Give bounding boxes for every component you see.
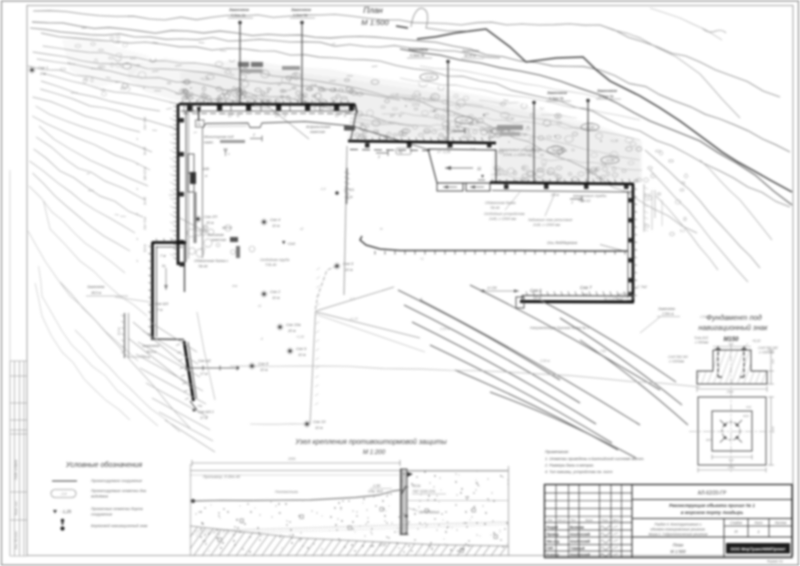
svg-text:АЛ-62/20-ГР: АЛ-62/20-ГР <box>698 491 727 497</box>
svg-text:1,25: 1,25 <box>430 109 437 113</box>
svg-text:План: План <box>673 543 684 548</box>
svg-text:Альбенский: Альбенский <box>570 553 590 557</box>
svg-text:Скв 10а: Скв 10а <box>286 322 301 327</box>
svg-text:Усл +3 м: Усл +3 м <box>143 216 147 230</box>
svg-text:Волкова: Волкова <box>570 526 584 530</box>
svg-text:Скв 2П: Скв 2П <box>204 214 217 219</box>
svg-text:План: План <box>363 6 383 15</box>
svg-text:М24: М24 <box>743 414 749 418</box>
svg-text:т: т <box>380 227 383 231</box>
svg-text:11: 11 <box>477 166 481 171</box>
svg-text:+2,50: +2,50 <box>606 158 615 162</box>
svg-text:10 м: 10 м <box>345 268 353 272</box>
svg-text:Типа А32: Типа А32 <box>694 336 708 340</box>
svg-text:2,00 м: 2,00 м <box>539 359 551 363</box>
svg-text:+5,10: +5,10 <box>752 339 761 343</box>
svg-text:Обм. Вод: Обм. Вод <box>368 490 383 494</box>
svg-text:6,1: 6,1 <box>680 229 685 233</box>
svg-text:+1,38 В: +1,38 В <box>448 113 460 117</box>
svg-text:М 1:200: М 1:200 <box>363 449 386 456</box>
svg-text:Скв Ш3: Скв Ш3 <box>155 302 169 306</box>
svg-text:1,2: 1,2 <box>350 297 355 301</box>
svg-text:Жб+М: Жб+М <box>221 226 232 230</box>
svg-text:1: 1 <box>757 529 759 534</box>
svg-text:-1,50: -1,50 <box>372 484 380 488</box>
svg-text:Скв 6: Скв 6 <box>530 288 542 293</box>
svg-text:10 м: 10 м <box>272 224 280 228</box>
svg-text:+2,50: +2,50 <box>505 117 514 121</box>
svg-text:2х-40: 2х-40 <box>143 197 147 206</box>
svg-text:7: 7 <box>571 201 574 205</box>
svg-text:П: П <box>735 529 738 534</box>
svg-text:Раздел 4. Конструктивные и: Раздел 4. Конструктивные и <box>655 523 702 527</box>
svg-text:+2,50: +2,50 <box>552 148 561 152</box>
svg-text:2550: 2550 <box>725 390 733 394</box>
svg-text:Провер: Провер <box>547 533 559 537</box>
svg-text:м: м <box>135 260 139 262</box>
svg-text:Асфальтовая: Асфальтовая <box>305 125 330 129</box>
svg-text:0х-45: 0х-45 <box>143 147 147 155</box>
svg-text:Ось Лед/берегов: Ось Лед/берегов <box>547 241 577 245</box>
svg-text:в морском порту Анадырь: в морском порту Анадырь <box>681 510 744 515</box>
svg-text:2: 2 <box>252 133 255 137</box>
svg-text:ПБТ 5208 20%: ПБТ 5208 20% <box>413 490 436 494</box>
svg-text:10 м: 10 м <box>260 368 268 372</box>
svg-text:Скв 10: Скв 10 <box>313 419 326 424</box>
svg-text:навес.: навес. <box>204 141 214 145</box>
svg-text:Заменяем: Заменяем <box>291 7 311 12</box>
svg-text:10 м: 10 м <box>298 353 306 357</box>
svg-text:Ф57: Ф57 <box>706 438 712 442</box>
svg-text:ООО МорТрансНИИПроект: ООО МорТрансНИИПроект <box>730 547 785 552</box>
svg-text:м: м <box>226 259 229 263</box>
svg-text:Проектные отметки борта: Проектные отметки борта <box>91 507 143 511</box>
svg-text:34,8: 34,8 <box>240 92 247 96</box>
svg-text:Фундамент под: Фундамент под <box>706 313 762 322</box>
svg-text:№док: №док <box>585 518 593 522</box>
svg-text:17: 17 <box>275 113 280 118</box>
svg-text:Разраб: Разраб <box>547 526 559 530</box>
svg-text:Забивные сваи рельсовые: Забивные сваи рельсовые <box>528 218 572 222</box>
svg-text:2,00 м: 2,00 м <box>439 327 451 331</box>
svg-text:2: 2 <box>377 155 380 159</box>
svg-text:Заменяем: Заменяем <box>462 49 480 53</box>
svg-text:Формат А1: Формат А1 <box>767 560 783 564</box>
svg-text:Направляющая буровая балка № 1: Направляющая буровая балка № 1 <box>530 326 589 330</box>
svg-text:А32: А32 <box>745 405 752 409</box>
svg-text:2000: 2000 <box>287 457 296 461</box>
svg-text:L=1000мм: L=1000мм <box>669 360 685 364</box>
svg-text:Усл +3 м: Усл +3 м <box>143 116 147 130</box>
svg-text:м: м <box>135 163 139 165</box>
svg-text:1. Отметки приведены в Балтийс: 1. Отметки приведены в Балтийской систем… <box>545 457 644 461</box>
svg-text:Стб ПА2 АН: Стб ПА2 АН <box>668 355 688 359</box>
svg-text:Скв 2: Скв 2 <box>270 289 281 294</box>
svg-text:0,5км-№: 0,5км-№ <box>231 14 246 18</box>
svg-text:2550: 2550 <box>727 466 735 470</box>
svg-text:навесная: навесная <box>310 130 325 134</box>
svg-text:Взам. инв.: Взам. инв. <box>14 501 18 516</box>
svg-text:9,9 м: 9,9 м <box>412 103 420 107</box>
svg-text:Реконструкция объекта причал №: Реконструкция объекта причал № 1 <box>669 502 755 508</box>
svg-text:Подп. и дата: Подп. и дата <box>14 460 18 480</box>
svg-text:17: 17 <box>228 113 233 118</box>
svg-text:навесная: навесная <box>211 238 226 242</box>
svg-text:L=1000мм: L=1000мм <box>759 351 775 355</box>
svg-text:м: м <box>135 213 139 215</box>
svg-text:+1,50: +1,50 <box>296 335 304 339</box>
svg-text:Условные обозначения: Условные обозначения <box>65 461 143 469</box>
svg-text:20 м: 20 м <box>287 329 296 333</box>
svg-text:Ку: Ку <box>162 264 166 268</box>
svg-text:+2,50: +2,50 <box>460 118 469 122</box>
svg-text:7 м: 7 м <box>160 254 166 258</box>
svg-text:Скв 1: Скв 1 <box>38 65 48 70</box>
svg-text:Скв 4: Скв 4 <box>270 217 281 222</box>
svg-text:+1,25: +1,25 <box>200 77 209 81</box>
svg-text:Геотекстиль: Геотекстиль <box>275 490 298 494</box>
svg-text:2х30, L=2000 мм: 2х30, L=2000 мм <box>532 223 561 227</box>
svg-text:Шп 4,5 м: Шп 4,5 м <box>143 166 147 180</box>
svg-text:Швартовые устройства: Швартовые устройства <box>499 148 542 152</box>
svg-text:Скв Ш3.1: Скв Ш3.1 <box>198 410 214 414</box>
svg-text:58,65 м: 58,65 м <box>464 54 476 58</box>
svg-text:1 м: 1 м <box>40 72 46 76</box>
svg-text:10 м: 10 м <box>533 295 542 300</box>
svg-text:+1: +1 <box>420 257 424 261</box>
svg-text:Скв 9: Скв 9 <box>296 346 307 351</box>
svg-text:х1,25: х1,25 <box>349 317 358 321</box>
svg-text:2,50: 2,50 <box>519 133 527 137</box>
svg-text:8,4 м: 8,4 м <box>143 244 147 252</box>
svg-text:20 м: 20 м <box>205 221 214 225</box>
svg-text:Скв Ш2: Скв Ш2 <box>198 359 211 363</box>
svg-text:Скв 8: Скв 8 <box>258 361 269 366</box>
svg-text:+1,38: +1,38 <box>610 139 618 143</box>
svg-text:8,3 м: 8,3 м <box>117 327 121 335</box>
svg-text:L=500мм: L=500мм <box>695 341 709 345</box>
svg-text:500: 500 <box>771 359 775 364</box>
svg-text:лив: лив <box>231 284 238 288</box>
svg-text:Проектируемое сооружение: Проектируемое сооружение <box>91 479 142 483</box>
svg-text:0 м: 0 м <box>347 195 353 199</box>
svg-text:св 4/1: св 4/1 <box>344 188 354 192</box>
svg-text:Кол.уч: Кол.уч <box>558 518 567 522</box>
svg-text:+2,50: +2,50 <box>586 125 595 129</box>
svg-text:Заменяем: Заменяем <box>408 47 428 52</box>
svg-text:м: м <box>135 238 139 240</box>
svg-text:Изм: Изм <box>547 518 552 522</box>
svg-text:Заменяем: Заменяем <box>229 7 249 12</box>
svg-text:+2н0: +2н0 <box>287 242 295 246</box>
svg-text:ТСВ-63: ТСВ-63 <box>578 199 590 203</box>
svg-text:0,5км-№: 0,5км-№ <box>549 97 564 101</box>
svg-text:ГИП: ГИП <box>547 547 554 551</box>
svg-text:Скв 7: Скв 7 <box>580 285 592 290</box>
svg-text:х: х <box>227 152 230 156</box>
svg-text:-2,4: -2,4 <box>600 163 606 167</box>
svg-text:Противохр. Л-30т-40: Противохр. Л-30т-40 <box>203 475 240 479</box>
svg-text:навигационный знак: навигационный знак <box>698 323 768 332</box>
svg-text:Подп: Подп <box>602 518 609 522</box>
svg-text:М 1:500: М 1:500 <box>670 549 686 554</box>
svg-text:Главный: Главный <box>570 547 585 551</box>
svg-text:-4: -4 <box>260 337 263 341</box>
svg-text:Заменяем: Заменяем <box>87 285 105 289</box>
svg-text:960: 960 <box>728 342 733 346</box>
svg-text:-1,4: -1,4 <box>310 83 316 87</box>
svg-text:Заменяем: Заменяем <box>597 88 617 93</box>
svg-text:Лист: Лист <box>753 521 763 525</box>
svg-text:м: м <box>420 297 423 301</box>
svg-text:Стадия: Стадия <box>730 521 742 525</box>
svg-text:Нач.отд: Нач.отд <box>547 540 560 544</box>
svg-text:Заменяем: Заменяем <box>547 90 567 95</box>
svg-text:Проектируемые отметки дна: Проектируемые отметки дна <box>91 489 146 493</box>
svg-text:+1м: +1м <box>600 349 607 353</box>
svg-text:45,0з: 45,0з <box>412 484 421 488</box>
svg-text:+2,50: +2,50 <box>390 93 399 97</box>
svg-text:- 2,4: - 2,4 <box>60 492 67 496</box>
svg-text:+№: +№ <box>197 404 203 408</box>
svg-text:17 -1,25: 17 -1,25 <box>437 150 450 154</box>
svg-text:водоёмов: водоёмов <box>91 495 108 499</box>
svg-text:2х45, L=2000 мм: 2х45, L=2000 мм <box>488 217 517 221</box>
svg-text:Обвязочная балка: Обвязочная балка <box>194 259 225 263</box>
svg-text:0,5км-№: 0,5км-№ <box>410 54 425 58</box>
svg-text:17: 17 <box>390 113 395 118</box>
svg-text:ШБ: ШБ <box>203 166 210 171</box>
svg-text:2. Размеры даны в метрах.: 2. Размеры даны в метрах. <box>544 464 594 468</box>
svg-text:Узел крепления противоштормово: Узел крепления противоштормовой защиты <box>294 438 447 446</box>
svg-text:С 7м2: С 7м2 <box>637 285 647 289</box>
svg-text:7: 7 <box>456 126 458 130</box>
svg-text:Альбенский: Альбенский <box>570 540 590 544</box>
svg-text:ТВ-40: ТВ-40 <box>198 265 208 269</box>
svg-text:10: 10 <box>583 292 588 297</box>
svg-text:Заменяем: Заменяем <box>658 307 676 311</box>
svg-text:ТВ-40: ТВ-40 <box>490 206 500 210</box>
svg-text:0,5км-№: 0,5км-№ <box>293 14 308 18</box>
svg-text:10 м: 10 м <box>272 296 280 300</box>
svg-text:+1,3К: +1,3К <box>621 296 630 300</box>
svg-text:-1,4: -1,4 <box>320 187 326 191</box>
svg-text:ТУБ-40: ТУБ-40 <box>265 263 276 267</box>
svg-text:Стб ПА2 М2: Стб ПА2 М2 <box>758 346 778 350</box>
svg-text:м: м <box>135 188 139 190</box>
svg-text:объемно-планировочные решения.: объемно-планировочные решения. <box>650 528 705 532</box>
svg-text:10 м: 10 м <box>315 426 323 430</box>
svg-text:+1,4: +1,4 <box>560 149 567 153</box>
svg-text:38,5 м: 38,5 м <box>91 291 102 295</box>
svg-text:Инв. № подл.: Инв. № подл. <box>14 531 18 550</box>
svg-text:м: м <box>205 174 208 178</box>
svg-text:+1,50: +1,50 <box>470 121 479 125</box>
svg-text:0,5км-№: 0,5км-№ <box>599 95 614 99</box>
svg-text:2,50х м: 2,50х м <box>661 312 674 316</box>
svg-text:м: м <box>237 114 240 118</box>
svg-text:Отбойная труба: Отбойная труба <box>260 258 289 262</box>
svg-text:пд: пд <box>399 150 403 154</box>
svg-text:Книга 1. Гидротехнические реше: Книга 1. Гидротехнические решения <box>649 533 708 537</box>
svg-text:Затирка 131 до 134 м: Затирка 131 до 134 м <box>402 97 436 101</box>
svg-text:м: м <box>344 114 347 118</box>
svg-text:сооружения: сооружения <box>91 513 112 517</box>
svg-text:м: м <box>135 138 139 140</box>
svg-text:Швартовые тумбы: Швартовые тумбы <box>573 194 607 198</box>
svg-text:№ 1,10 м1а: № 1,10 м1а <box>604 297 622 301</box>
svg-text:Н.контр: Н.контр <box>547 553 560 557</box>
svg-text:Лист: Лист <box>570 518 577 522</box>
svg-text:Примечания:: Примечания: <box>545 449 569 454</box>
svg-text:Мониторная под: Мониторная под <box>204 135 234 139</box>
svg-text:П1: П1 <box>197 123 201 127</box>
svg-text:2ПУК, L=2000 мм: 2ПУК, L=2000 мм <box>502 153 533 157</box>
svg-text:х2: х2 <box>299 227 304 231</box>
svg-text:х1: х1 <box>257 304 262 308</box>
svg-text:17: 17 <box>335 113 340 118</box>
svg-text:17 м: 17 м <box>200 372 208 376</box>
svg-text:- 1,25: - 1,25 <box>60 509 72 514</box>
svg-text:2000: 2000 <box>771 426 775 434</box>
svg-text:Береговой навигационный знак: Береговой навигационный знак <box>91 524 148 528</box>
svg-text:1 м: 1 м <box>470 147 476 151</box>
svg-text:Отбойные устройства: Отбойные устройства <box>484 212 525 216</box>
svg-text:7 м: 7 м <box>157 308 163 312</box>
svg-text:м: м <box>284 114 287 118</box>
svg-text:+2,50: +2,50 <box>425 75 434 79</box>
svg-text:⊳+2М: ⊳+2М <box>487 286 497 290</box>
svg-text:Листов: Листов <box>774 521 787 525</box>
svg-text:Дата: Дата <box>613 518 620 522</box>
svg-text:500: 500 <box>728 458 733 462</box>
svg-text:Альбенский: Альбенский <box>570 533 590 537</box>
svg-text:4. Тип навигац. устройства см.: 4. Тип навигац. устройства см. лист <box>545 470 613 474</box>
